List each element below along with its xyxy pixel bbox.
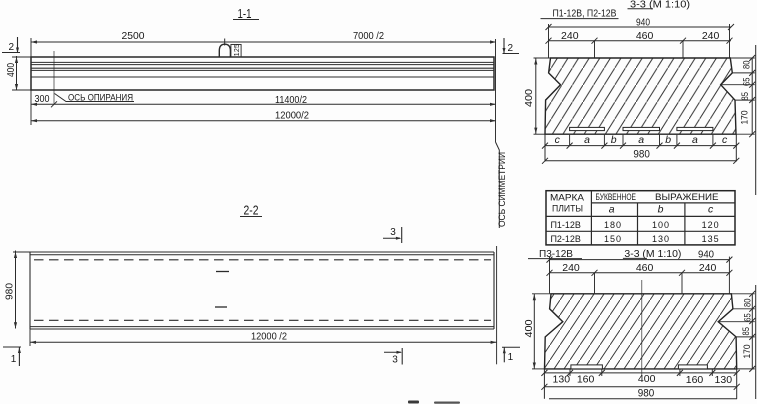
svg-text:100: 100 [652,220,670,230]
svg-text:ОСЬ СИММЕТРИИ: ОСЬ СИММЕТРИИ [497,152,507,227]
svg-text:120: 120 [702,220,720,230]
svg-text:460: 460 [636,30,654,42]
svg-text:160: 160 [686,374,704,386]
svg-text:МАРКА: МАРКА [550,193,585,204]
svg-text:b: b [658,204,664,216]
svg-text:300: 300 [35,93,50,105]
svg-text:ОСЬ ОПИРАНИЯ: ОСЬ ОПИРАНИЯ [68,93,133,103]
svg-text:2-2: 2-2 [244,204,259,218]
svg-text:3: 3 [390,227,396,238]
svg-text:240: 240 [562,262,580,274]
svg-text:80: 80 [743,299,753,308]
svg-text:180: 180 [604,220,622,230]
svg-text:ВЫРАЖЕНИЕ: ВЫРАЖЕНИЕ [655,192,719,202]
svg-text:150: 150 [604,234,622,244]
svg-text:П1-12В, П2-12В: П1-12В, П2-12В [553,9,617,20]
svg-text:c: c [722,134,728,146]
svg-text:400: 400 [5,63,17,77]
svg-text:2: 2 [9,42,15,53]
svg-text:3: 3 [392,355,398,366]
svg-text:1-1: 1-1 [238,7,252,21]
svg-text:160: 160 [577,374,595,386]
svg-text:400: 400 [523,89,535,107]
svg-text:170: 170 [742,345,752,359]
svg-text:a: a [609,204,615,216]
svg-text:240: 240 [561,30,579,42]
svg-text:980: 980 [638,387,655,399]
svg-text:ПЛИТЫ: ПЛИТЫ [552,204,583,215]
svg-text:7000 /2: 7000 /2 [353,30,384,42]
svg-text:130: 130 [715,374,733,386]
svg-text:b: b [665,134,671,146]
svg-text:a: a [692,134,698,146]
svg-text:12000/2: 12000/2 [275,110,309,122]
svg-text:2500: 2500 [122,30,145,42]
svg-text:c: c [555,134,561,146]
svg-text:460: 460 [636,262,654,274]
svg-text:400: 400 [638,373,656,385]
svg-text:170: 170 [740,111,750,125]
svg-text:240: 240 [699,262,717,274]
svg-text:a: a [638,134,644,146]
svg-text:135: 135 [702,234,720,244]
svg-text:80: 80 [742,61,752,70]
svg-text:240: 240 [702,30,720,42]
svg-text:БУКВЕННОЕ: БУКВЕННОЕ [596,192,637,202]
svg-text:940: 940 [698,248,714,260]
svg-text:65: 65 [742,78,752,87]
svg-text:980: 980 [633,149,650,161]
svg-text:85: 85 [740,92,750,101]
svg-text:130: 130 [553,374,571,386]
svg-text:980: 980 [5,283,16,300]
svg-text:125: 125 [234,44,241,56]
svg-text:2: 2 [508,43,514,54]
svg-text:11400/2: 11400/2 [275,94,307,106]
svg-text:12000 /2: 12000 /2 [251,331,287,343]
svg-text:85: 85 [741,327,751,336]
svg-text:65: 65 [743,313,753,322]
svg-text:130: 130 [652,234,670,244]
svg-text:c: c [708,204,714,216]
svg-text:П2-12В: П2-12В [550,234,581,244]
svg-text:П1-12В: П1-12В [550,220,581,230]
svg-text:1: 1 [508,352,514,363]
svg-text:a: a [584,134,590,146]
svg-text:b: b [611,134,617,146]
svg-text:400: 400 [523,319,535,337]
svg-text:1: 1 [11,354,17,365]
